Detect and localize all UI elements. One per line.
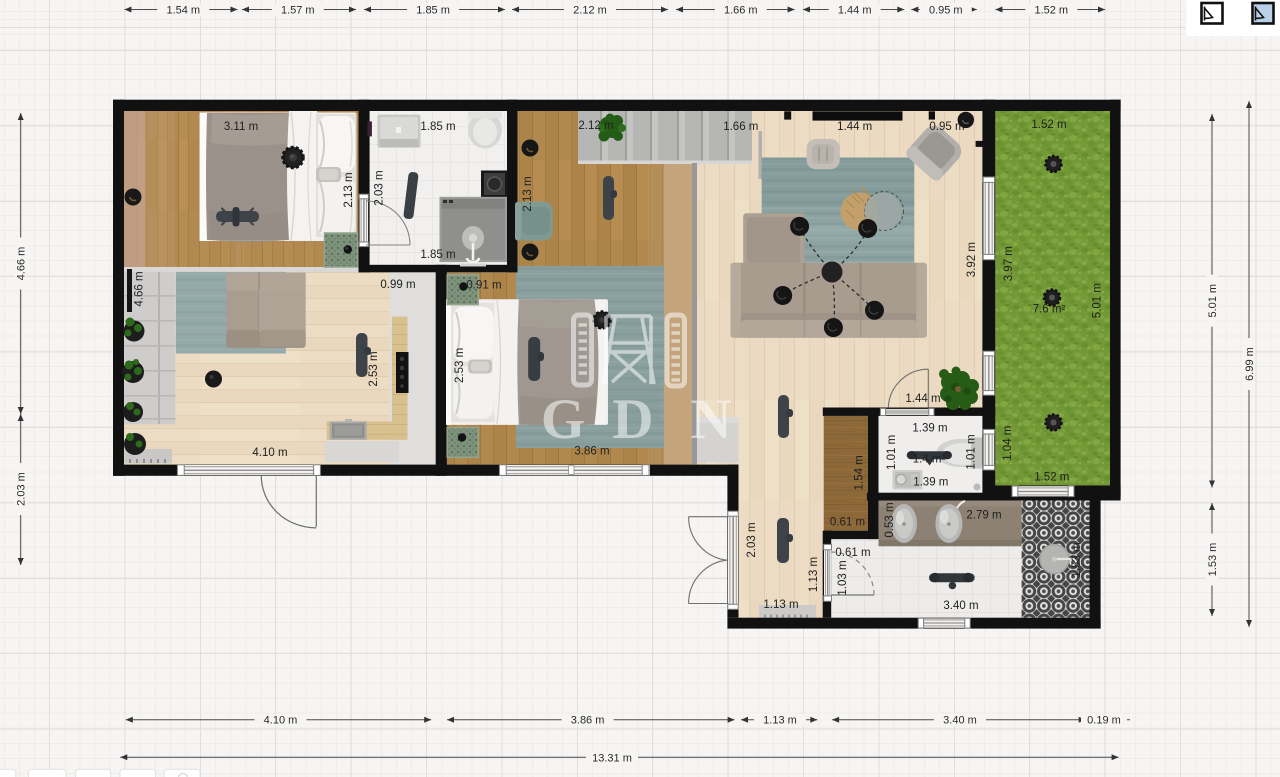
svg-text:0.99 m: 0.99 m bbox=[380, 279, 415, 291]
svg-text:1.53 m: 1.53 m bbox=[1071, 542, 1083, 577]
svg-text:2.03 m: 2.03 m bbox=[374, 170, 386, 205]
svg-text:1.01 m: 1.01 m bbox=[965, 434, 977, 469]
svg-text:D: D bbox=[612, 388, 653, 451]
svg-text:1.13 m: 1.13 m bbox=[763, 715, 797, 727]
svg-text:4.66 m: 4.66 m bbox=[134, 271, 146, 306]
svg-text:2.13 m: 2.13 m bbox=[522, 176, 534, 211]
svg-text:N: N bbox=[690, 388, 731, 451]
svg-text:2.03 m: 2.03 m bbox=[16, 472, 28, 506]
svg-text:0.19 m: 0.19 m bbox=[1087, 715, 1121, 727]
svg-text:3.86 m: 3.86 m bbox=[574, 446, 609, 458]
svg-text:6.99 m: 6.99 m bbox=[1244, 347, 1256, 381]
svg-text:1.44 m: 1.44 m bbox=[905, 393, 940, 405]
svg-text:1.85 m: 1.85 m bbox=[420, 121, 455, 133]
svg-text:0.61 m: 0.61 m bbox=[835, 547, 870, 559]
svg-text:1.44 m: 1.44 m bbox=[837, 121, 872, 133]
svg-text:5.01 m: 5.01 m bbox=[1092, 283, 1104, 318]
svg-text:1.03 m: 1.03 m bbox=[837, 560, 849, 595]
svg-text:4.66 m: 4.66 m bbox=[16, 247, 28, 281]
svg-text:1.13 m: 1.13 m bbox=[763, 599, 798, 611]
svg-text:0.53 m: 0.53 m bbox=[884, 502, 896, 537]
svg-text:3.86 m: 3.86 m bbox=[571, 715, 605, 727]
svg-text:1.52 m: 1.52 m bbox=[1031, 119, 1066, 131]
svg-text:3.97 m: 3.97 m bbox=[1003, 246, 1015, 281]
svg-text:4.10 m: 4.10 m bbox=[252, 447, 287, 459]
svg-text:2.12 m: 2.12 m bbox=[578, 120, 613, 132]
svg-text:0.95 m: 0.95 m bbox=[929, 121, 964, 133]
svg-text:1.57 m: 1.57 m bbox=[281, 5, 315, 17]
svg-text:2.13 m: 2.13 m bbox=[343, 172, 355, 207]
svg-text:1.04 m: 1.04 m bbox=[1002, 426, 1014, 461]
svg-text:2.12 m: 2.12 m bbox=[573, 5, 607, 17]
svg-text:3.92 m: 3.92 m bbox=[966, 242, 978, 277]
svg-text:3.40 m: 3.40 m bbox=[943, 600, 978, 612]
svg-text:1.52 m: 1.52 m bbox=[1034, 471, 1069, 483]
svg-text:2.79 m: 2.79 m bbox=[966, 510, 1001, 522]
svg-text:13.31 m: 13.31 m bbox=[592, 752, 632, 764]
svg-text:3.40 m: 3.40 m bbox=[943, 715, 977, 727]
svg-text:G: G bbox=[541, 388, 585, 451]
svg-text:1.85 m: 1.85 m bbox=[420, 249, 455, 261]
svg-text:2.53 m: 2.53 m bbox=[368, 351, 380, 386]
svg-text:1.4 m²: 1.4 m² bbox=[913, 454, 946, 466]
svg-text:2.03 m: 2.03 m bbox=[746, 522, 758, 557]
svg-text:1.13 m: 1.13 m bbox=[808, 557, 820, 592]
svg-text:1.44 m: 1.44 m bbox=[838, 5, 872, 17]
svg-text:1.39 m: 1.39 m bbox=[913, 476, 948, 488]
svg-text:3.11 m: 3.11 m bbox=[224, 121, 258, 133]
svg-text:5.01 m: 5.01 m bbox=[1207, 284, 1219, 318]
svg-text:0.91 m: 0.91 m bbox=[466, 279, 501, 291]
svg-text:4.10 m: 4.10 m bbox=[264, 715, 298, 727]
svg-text:0.61 m: 0.61 m bbox=[830, 516, 865, 528]
svg-text:7.6 m²: 7.6 m² bbox=[1033, 304, 1066, 316]
svg-text:1.54 m: 1.54 m bbox=[854, 455, 866, 490]
svg-text:0.95 m: 0.95 m bbox=[929, 5, 963, 17]
svg-text:1.66 m: 1.66 m bbox=[724, 5, 758, 17]
svg-text:1.53 m: 1.53 m bbox=[1207, 543, 1219, 577]
svg-text:1.66 m: 1.66 m bbox=[723, 121, 758, 133]
svg-text:1.39 m: 1.39 m bbox=[912, 423, 947, 435]
svg-text:2.53 m: 2.53 m bbox=[454, 348, 466, 383]
svg-text:1.01 m: 1.01 m bbox=[886, 435, 898, 470]
svg-text:1.54 m: 1.54 m bbox=[166, 5, 200, 17]
svg-text:1.52 m: 1.52 m bbox=[1034, 5, 1068, 17]
svg-text:1.85 m: 1.85 m bbox=[416, 5, 450, 17]
